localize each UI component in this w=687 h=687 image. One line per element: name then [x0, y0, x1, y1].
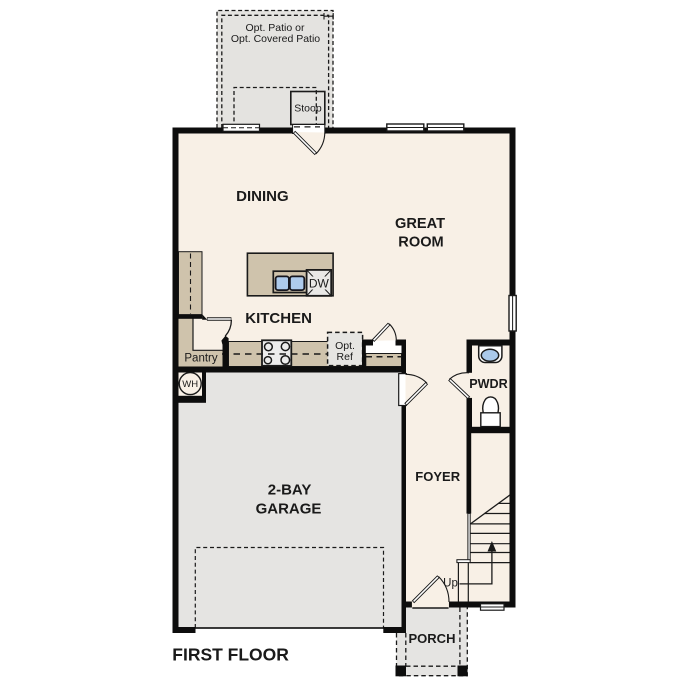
svg-text:Up: Up	[443, 578, 458, 590]
svg-text:KITCHEN: KITCHEN	[245, 310, 312, 327]
svg-text:2-BAY: 2-BAY	[268, 482, 312, 499]
svg-text:FIRST FLOOR: FIRST FLOOR	[172, 645, 289, 665]
svg-text:Stoop: Stoop	[294, 103, 322, 115]
svg-text:WH: WH	[182, 379, 198, 390]
svg-text:GREAT: GREAT	[395, 216, 445, 232]
svg-text:DINING: DINING	[236, 188, 289, 205]
svg-text:PWDR: PWDR	[469, 377, 507, 391]
svg-text:DW: DW	[309, 276, 330, 290]
svg-text:Opt. Covered Patio: Opt. Covered Patio	[231, 33, 320, 45]
svg-text:Pantry: Pantry	[184, 353, 217, 365]
svg-text:GARAGE: GARAGE	[256, 501, 322, 518]
svg-text:FOYER: FOYER	[415, 469, 460, 484]
svg-text:PORCH: PORCH	[409, 631, 456, 646]
svg-text:Ref: Ref	[337, 351, 353, 363]
svg-text:ROOM: ROOM	[398, 235, 443, 251]
